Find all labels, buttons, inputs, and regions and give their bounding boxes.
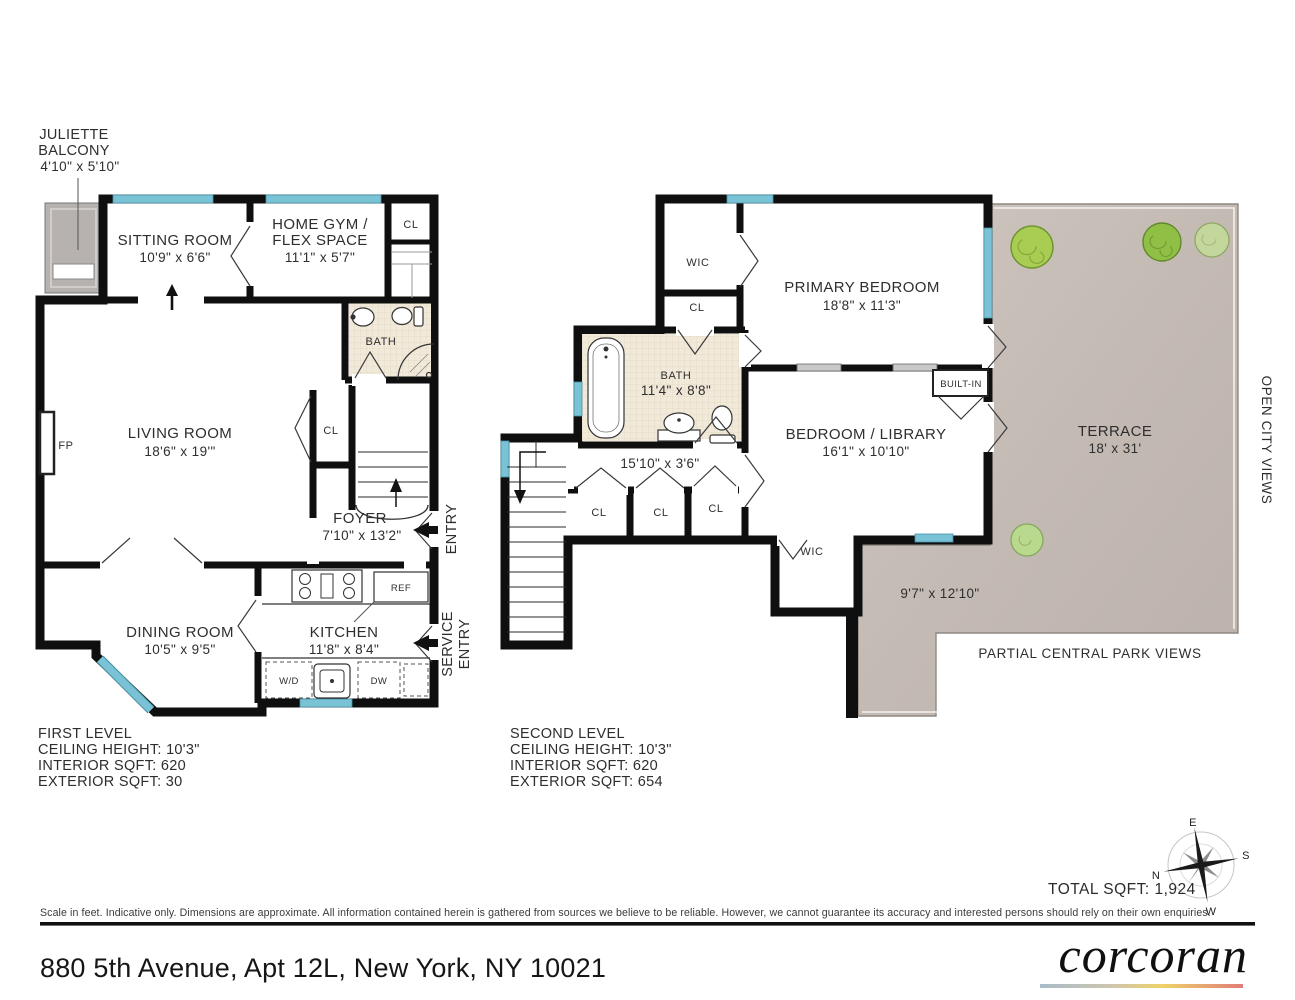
brand-gradient-bar bbox=[1040, 984, 1243, 988]
first-level-exterior: EXTERIOR SQFT: 30 bbox=[38, 774, 183, 790]
second-floor-plan: WIC CL PRIMARY BEDROOM 18'8" x 11'3" BAT… bbox=[501, 195, 1274, 790]
compass-rose-icon: E S W N bbox=[1152, 817, 1250, 918]
living-room-label: LIVING ROOM bbox=[128, 425, 232, 442]
dining-room-dims: 10'5" x 9'5" bbox=[144, 642, 215, 657]
sink2-icon bbox=[664, 413, 694, 433]
fireplace-icon bbox=[40, 412, 54, 474]
living-room-dims: 18'6" x 19'" bbox=[144, 444, 215, 459]
entry-label: ENTRY bbox=[444, 504, 460, 554]
closet-label: CL bbox=[591, 507, 606, 519]
open-city-views-label: OPEN CITY VIEWS bbox=[1259, 376, 1274, 505]
home-gym-dims: 11'1" x 5'7" bbox=[285, 250, 355, 265]
terrace-dims: 18' x 31' bbox=[1088, 441, 1141, 456]
second-level-title: SECOND LEVEL bbox=[510, 726, 625, 742]
wic-label: WIC bbox=[686, 257, 709, 269]
second-level-ceiling: CEILING HEIGHT: 10'3" bbox=[510, 742, 672, 758]
hallway-dims: 15'10" x 3'6" bbox=[620, 456, 699, 471]
juliette-balcony bbox=[45, 178, 102, 293]
kitchen-label: KITCHEN bbox=[310, 624, 379, 641]
terrace-label: TERRACE bbox=[1078, 423, 1152, 440]
stove-icon bbox=[292, 570, 362, 602]
home-gym-label: HOME GYM / bbox=[272, 216, 368, 233]
bedroom-library-label: BEDROOM / LIBRARY bbox=[786, 426, 947, 443]
disclaimer-text: Scale in feet. Indicative only. Dimensio… bbox=[40, 907, 1211, 919]
address-title: 880 5th Avenue, Apt 12L, New York, NY 10… bbox=[40, 953, 606, 983]
bath2-label: BATH bbox=[661, 370, 692, 382]
second-level-exterior: EXTERIOR SQFT: 654 bbox=[510, 774, 663, 790]
bath-label: BATH bbox=[366, 336, 397, 348]
wic2-label: WIC bbox=[800, 546, 823, 558]
foyer-dims: 7'10" x 13'2" bbox=[322, 528, 401, 543]
dw-label: DW bbox=[371, 676, 388, 687]
ref-label: REF bbox=[391, 583, 411, 594]
dining-room-label: DINING ROOM bbox=[126, 624, 234, 641]
closet-label: CL bbox=[653, 507, 668, 519]
sitting-room-label: SITTING ROOM bbox=[118, 232, 233, 249]
built-in-label: BUILT-IN bbox=[940, 379, 982, 390]
closet-label: CL bbox=[708, 503, 723, 515]
corcoran-logo: corcoran bbox=[1040, 927, 1248, 988]
first-level-title: FIRST LEVEL bbox=[38, 726, 132, 742]
brand-wordmark: corcoran bbox=[1059, 927, 1248, 983]
footer-rule bbox=[40, 922, 1255, 926]
terrace-lower-dims: 9'7" x 12'10" bbox=[900, 586, 979, 601]
floorplan-page: JULIETTE BALCONY 4'10" x 5'10" SITTING R… bbox=[0, 0, 1295, 1000]
bedroom-library-dims: 16'1" x 10'10" bbox=[822, 444, 909, 459]
primary-bedroom-label: PRIMARY BEDROOM bbox=[784, 279, 939, 296]
sitting-room-dims: 10'9" x 6'6" bbox=[139, 250, 210, 265]
toilet-icon bbox=[392, 308, 412, 325]
compass-s: S bbox=[1242, 850, 1250, 862]
balcony-dims: 4'10" x 5'10" bbox=[40, 159, 119, 174]
closet-label: CL bbox=[689, 302, 704, 314]
home-gym-label2: FLEX SPACE bbox=[272, 232, 367, 249]
total-sqft: TOTAL SQFT: 1,924 bbox=[1048, 881, 1196, 898]
closet-label: CL bbox=[323, 425, 338, 437]
second-level-stats: SECOND LEVEL CEILING HEIGHT: 10'3" INTER… bbox=[510, 726, 672, 790]
service-entry-label1: SERVICE bbox=[440, 611, 456, 677]
service-entry-label2: ENTRY bbox=[457, 619, 473, 669]
first-level-interior: INTERIOR SQFT: 620 bbox=[38, 758, 186, 774]
foyer-label: FOYER bbox=[333, 510, 387, 527]
compass-e: E bbox=[1189, 817, 1197, 829]
bath2-dims: 11'4" x 8'8" bbox=[641, 383, 711, 398]
floorplan-svg: JULIETTE BALCONY 4'10" x 5'10" SITTING R… bbox=[0, 0, 1295, 1000]
first-level-ceiling: CEILING HEIGHT: 10'3" bbox=[38, 742, 200, 758]
balcony-label2: BALCONY bbox=[38, 143, 109, 159]
wd-label: W/D bbox=[279, 676, 299, 687]
central-park-views-label: PARTIAL CENTRAL PARK VIEWS bbox=[978, 646, 1201, 661]
balcony-label: JULIETTE bbox=[39, 127, 108, 143]
kitchen-dims: 11'8" x 8'4" bbox=[309, 642, 379, 657]
second-level-interior: INTERIOR SQFT: 620 bbox=[510, 758, 658, 774]
first-floor-plan: JULIETTE BALCONY 4'10" x 5'10" SITTING R… bbox=[38, 127, 473, 790]
fireplace-label: FP bbox=[58, 440, 73, 452]
first-level-stats: FIRST LEVEL CEILING HEIGHT: 10'3" INTERI… bbox=[38, 726, 200, 790]
primary-bedroom-dims: 18'8" x 11'3" bbox=[823, 298, 901, 313]
closet-label: CL bbox=[403, 219, 418, 231]
